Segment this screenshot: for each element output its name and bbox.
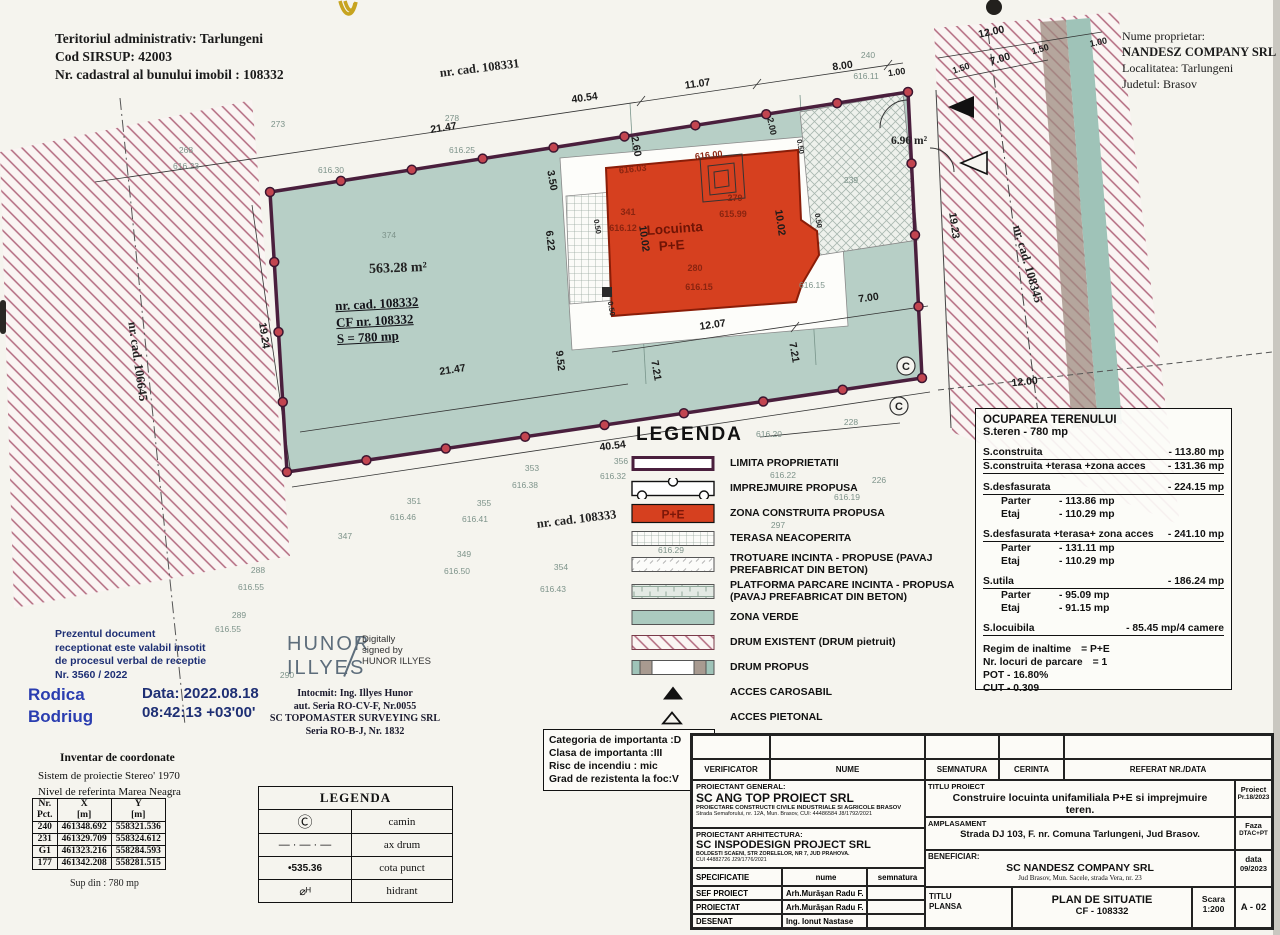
fence-point bbox=[679, 409, 688, 418]
pg-name: SC ANG TOP PROIECT SRL bbox=[696, 791, 921, 805]
site-address: Strada DJ 103, F. nr. Comuna Tarlungeni,… bbox=[926, 829, 1234, 840]
occupancy-label: Parter bbox=[1001, 589, 1059, 602]
empty-cell bbox=[999, 735, 1064, 759]
spec-person: Ing. Ionut Nastase bbox=[782, 914, 867, 928]
occupancy-row: Parter- 113.86 mp bbox=[983, 495, 1224, 508]
coordinate-cell: 240 bbox=[33, 822, 58, 834]
col-point: Nr. Pct. bbox=[33, 799, 58, 822]
cerinta-header: CERINTA bbox=[999, 759, 1064, 780]
fence-point bbox=[907, 159, 916, 168]
plan-label: 273 bbox=[271, 119, 285, 129]
black-dot-artifact bbox=[986, 0, 1002, 15]
imprejmuire-symbol bbox=[628, 478, 718, 499]
owner-county: Judetul: Brasov bbox=[1122, 76, 1277, 92]
symbol-legend-title: LEGENDA bbox=[259, 787, 453, 810]
site-address-cell: AMPLASAMENT Strada DJ 103, F. nr. Comuna… bbox=[925, 817, 1235, 850]
project-title-label: TITLU PROIECT bbox=[926, 781, 1234, 792]
col-x: X [m] bbox=[57, 799, 111, 822]
plan-label: 240 bbox=[861, 50, 875, 60]
fence-point bbox=[914, 302, 923, 311]
plan-label: 278 bbox=[445, 113, 459, 123]
legend-item-label: ACCES PIETONAL bbox=[730, 712, 823, 724]
legend-item-label: PLATFORMA PARCARE INCINTA - PROPUSA (PAV… bbox=[730, 580, 954, 603]
sheet-title-cell: PLAN DE SITUATIE CF - 108332 bbox=[1012, 887, 1192, 928]
fire-risk: Risc de incendiu : mic bbox=[549, 760, 709, 773]
plan-label: 1.00 bbox=[887, 66, 906, 78]
occupancy-value: - 224.15 mp bbox=[1168, 481, 1224, 494]
occupancy-label: Nr. locuri de parcare bbox=[983, 656, 1083, 669]
empty-cell bbox=[925, 735, 999, 759]
general-designer-cell: PROIECTANT GENERAL: SC ANG TOP PROIECT S… bbox=[692, 780, 925, 828]
stamp-signer-first: Rodica bbox=[28, 684, 93, 706]
plan-label: 616.25 bbox=[449, 145, 475, 155]
occupancy-row: S.construita- 113.80 mp bbox=[983, 446, 1224, 460]
spec-person: Arh.Murăşan Radu F. bbox=[782, 886, 867, 900]
occupancy-value: - 91.15 mp bbox=[1059, 602, 1109, 615]
semnatura-header: SEMNATURA bbox=[925, 759, 999, 780]
plan-label: nr. cad. 108333 bbox=[536, 507, 617, 531]
pa-line2: CUI 44882726 J29/1776/2021 bbox=[696, 857, 921, 863]
plan-label: 616.43 bbox=[540, 584, 566, 594]
legend-item: IMPREJMUIRE PROPUSA bbox=[628, 478, 998, 499]
occupancy-value: - 131.11 mp bbox=[1059, 542, 1115, 555]
occupancy-value: - 85.45 mp/4 camere bbox=[1126, 622, 1224, 635]
fence-point bbox=[600, 421, 609, 430]
amplasament-label: AMPLASAMENT bbox=[926, 818, 1234, 829]
legend-item: LIMITA PROPRIETATII bbox=[628, 453, 998, 474]
surveyor-line3: SC TOPOMASTER SURVEYING SRL bbox=[260, 713, 450, 726]
main-legend: LEGENDA LIMITA PROPRIETATIIIMPREJMUIRE P… bbox=[628, 424, 998, 732]
land-occupancy-table: OCUPAREA TERENULUI S.teren - 780 mp S.co… bbox=[975, 408, 1232, 690]
plan-label: 351 bbox=[407, 496, 421, 506]
importance-category: Categoria de importanta :D bbox=[549, 734, 709, 747]
fence-point bbox=[407, 165, 416, 174]
legend-item-label: TROTUARE INCINTA - PROPUSE (PAVAJ PREFAB… bbox=[730, 553, 932, 576]
symbol-legend-row: ⌀ᴴhidrant bbox=[259, 880, 453, 903]
legend-item: TERASA NEACOPERITA bbox=[628, 528, 998, 549]
stamp-date-line1: Data: 2022.08.18 bbox=[142, 684, 259, 703]
symbol-legend-row: — · — · —ax drum bbox=[259, 834, 453, 857]
symbol-legend-label: hidrant bbox=[352, 880, 453, 903]
spec-role: DESENAT bbox=[692, 914, 782, 928]
fence-point bbox=[270, 258, 279, 267]
fence-point bbox=[283, 468, 292, 477]
svg-text:P+E: P+E bbox=[661, 508, 684, 522]
plan-label: nr. cad. 108331 bbox=[439, 56, 520, 80]
acces-pietonal-symbol bbox=[628, 707, 718, 728]
project-number-cell: Proiect Pr.18/2023 bbox=[1235, 780, 1272, 817]
stamp-date: Data: 2022.08.18 08:42:13 +03'00' bbox=[142, 684, 259, 722]
edge-blob-artifact bbox=[0, 300, 6, 334]
plan-label: P+E bbox=[658, 237, 685, 254]
spec-signature bbox=[867, 914, 925, 928]
spec-row: DESENATIng. Ionut Nastase bbox=[692, 914, 925, 928]
occupancy-gap bbox=[983, 474, 1224, 481]
occupancy-label: Regim de inaltime bbox=[983, 643, 1071, 656]
symbol-legend-table: LEGENDA Ⓒcamin— · — · —ax drum•535.36cot… bbox=[258, 786, 453, 903]
project-label: Proiect bbox=[1236, 785, 1271, 794]
occupancy-value: - 110.29 mp bbox=[1059, 508, 1115, 521]
occupancy-row: Parter- 131.11 mp bbox=[983, 542, 1224, 555]
legend-item-label: ACCES CAROSABIL bbox=[730, 687, 832, 699]
spec-row: SEF PROIECTArh.Murăşan Radu F. bbox=[692, 886, 925, 900]
sheet-cf: CF - 108332 bbox=[1013, 906, 1191, 917]
occupancy-row: POT - 16.80% bbox=[983, 669, 1224, 682]
parcel-id-annotation: nr. cad. 108332 CF nr. 108332 S = 780 mp bbox=[335, 294, 421, 348]
coordinate-row: 240461348.692558321.536 bbox=[33, 822, 166, 834]
scale-label: Scara bbox=[1193, 894, 1234, 904]
platforma-symbol bbox=[628, 581, 718, 602]
legend-item-label: ZONA VERDE bbox=[730, 612, 798, 624]
fence-point bbox=[918, 374, 927, 383]
plan-label: 356 bbox=[614, 456, 628, 466]
yellow-scribble-artifact bbox=[340, 1, 356, 14]
coordinate-cell: 461323.216 bbox=[57, 846, 111, 858]
occupancy-value: - 113.80 mp bbox=[1168, 446, 1224, 459]
occupancy-value: - 241.10 mp bbox=[1168, 528, 1224, 541]
legend-item-label: DRUM PROPUS bbox=[730, 662, 809, 674]
occupancy-row: Regim de inaltime= P+E bbox=[983, 643, 1224, 656]
acces-carosabil-symbol bbox=[628, 682, 718, 703]
coordinate-row: G1461323.216558284.593 bbox=[33, 846, 166, 858]
occupancy-row: Etaj- 110.29 mp bbox=[983, 508, 1224, 521]
beneficiary-label: BENEFICIAR: bbox=[926, 851, 1234, 862]
symbol-legend-label: cota punct bbox=[352, 857, 453, 880]
occupancy-row: S.locuibila- 85.45 mp/4 camere bbox=[983, 622, 1224, 636]
legend-item: ACCES PIETONAL bbox=[628, 707, 998, 728]
occupancy-row: Etaj- 110.29 mp bbox=[983, 555, 1224, 568]
occupancy-value: - 186.24 mp bbox=[1168, 575, 1224, 588]
stamp-signer-last: Bodriug bbox=[28, 706, 93, 728]
coordinate-cell: G1 bbox=[33, 846, 58, 858]
sirsup-line: Cod SIRSUP: 42003 bbox=[55, 48, 284, 66]
limita-symbol bbox=[628, 453, 718, 474]
utility-box bbox=[602, 287, 612, 297]
occupancy-value: = 1 bbox=[1093, 656, 1108, 669]
occupancy-label: Etaj bbox=[1001, 508, 1059, 521]
cota-punct-icon: •535.36 bbox=[259, 857, 352, 880]
legend-item: PLATFORMA PARCARE INCINTA - PROPUSA (PAV… bbox=[628, 580, 998, 603]
occupancy-row: Nr. locuri de parcare= 1 bbox=[983, 656, 1224, 669]
occupancy-gap bbox=[983, 521, 1224, 528]
plan-label: 341 bbox=[620, 207, 635, 217]
legend-item: TROTUARE INCINTA - PROPUSE (PAVAJ PREFAB… bbox=[628, 553, 998, 576]
plan-label: 563.28 m² bbox=[369, 260, 427, 277]
coordinate-cell: 461329.709 bbox=[57, 834, 111, 846]
digital-signature-note: Digitally signed by HUNOR ILLYES bbox=[362, 634, 431, 667]
occupancy-row: S.utila- 186.24 mp bbox=[983, 575, 1224, 589]
coordinates-projection: Sistem de proiectie Stereo' 1970 bbox=[38, 770, 180, 782]
occupancy-row: Etaj- 91.15 mp bbox=[983, 602, 1224, 615]
legend-item: DRUM EXISTENT (DRUM pietruit) bbox=[628, 632, 998, 653]
spec-nume-header: nume bbox=[782, 868, 867, 886]
fence-point bbox=[521, 432, 530, 441]
owner-info: Nume proprietar: NANDESZ COMPANY SRL Loc… bbox=[1122, 28, 1277, 92]
surveyor-line1: Intocmit: Ing. Illyes Hunor bbox=[260, 688, 450, 701]
plan-label: 239 bbox=[844, 175, 858, 185]
paper-edge bbox=[1273, 0, 1280, 935]
plan-label: 616.41 bbox=[462, 514, 488, 524]
occupancy-label: S.utila bbox=[983, 575, 1014, 588]
surveyor-line2: aut. Seria RO-CV-F, Nr.0055 bbox=[260, 701, 450, 714]
occupancy-label: Parter bbox=[1001, 542, 1059, 555]
fence-point bbox=[620, 132, 629, 141]
occupancy-row: S.desfasurata +terasa+ zona acces- 241.1… bbox=[983, 528, 1224, 542]
sheet-title: PLAN DE SITUATIE bbox=[1013, 894, 1191, 906]
spec-header-row: SPECIFICATIE nume semnatura bbox=[692, 868, 925, 886]
spec-header: SPECIFICATIE bbox=[692, 868, 782, 886]
legend-item-label: IMPREJMUIRE PROPUSA bbox=[730, 483, 858, 495]
occupancy-label: Etaj bbox=[1001, 602, 1059, 615]
fence-point bbox=[904, 88, 913, 97]
scale-value: 1:200 bbox=[1193, 904, 1234, 914]
legend-item: P+EZONA CONSTRUITA PROPUSA bbox=[628, 503, 998, 524]
terasa-symbol bbox=[628, 528, 718, 549]
occupancy-label: Etaj bbox=[1001, 555, 1059, 568]
date-cell: data 09/2023 bbox=[1235, 850, 1272, 887]
cadastral-line: Nr. cadastral al bunului imobil : 108332 bbox=[55, 66, 284, 84]
occupancy-subtitle: S.teren - 780 mp bbox=[983, 426, 1224, 438]
symbol-legend-label: camin bbox=[352, 810, 453, 834]
col-y: Y [m] bbox=[111, 799, 165, 822]
sheet-title-label-cell: TITLU PLANSA bbox=[925, 887, 1012, 928]
surveyor-line4: Seria RO-B-J, Nr. 1832 bbox=[260, 726, 450, 739]
occupancy-label: POT - 16.80% bbox=[983, 669, 1048, 682]
plan-label: 616.11 bbox=[853, 71, 879, 81]
fence-point bbox=[911, 231, 920, 240]
fence-point bbox=[478, 154, 487, 163]
coordinates-footer: Sup din : 780 mp bbox=[70, 878, 139, 889]
spec-role: SEF PROIECT bbox=[692, 886, 782, 900]
fence-point bbox=[549, 143, 558, 152]
architecture-designer-cell: PROIECTANT ARHITECTURA: SC INSPODESIGN P… bbox=[692, 828, 925, 868]
beneficiary-cell: BENEFICIAR: SC NANDESZ COMPANY SRL Jud B… bbox=[925, 850, 1235, 887]
title-block: VERIFICATOR NUME PROIECTANT GENERAL: SC … bbox=[690, 733, 1274, 930]
occupancy-label: S.construita bbox=[983, 446, 1043, 459]
coordinate-cell: 558284.593 bbox=[111, 846, 165, 858]
date-value: 09/2023 bbox=[1236, 864, 1271, 873]
coordinates-datum: Nivel de referinta Marea Neagra bbox=[38, 786, 181, 798]
scanned-site-plan-document: nr. cad. 10833140.5411.078.001.00240616.… bbox=[0, 0, 1280, 935]
phase-value: DTAC+PT bbox=[1236, 830, 1271, 837]
empty-cell bbox=[1064, 735, 1272, 759]
plan-label: 347 bbox=[338, 531, 352, 541]
fence-point bbox=[274, 328, 283, 337]
plan-label: 349 bbox=[457, 549, 471, 559]
legend-item: DRUM PROPUS bbox=[628, 657, 998, 678]
sheet-title-label: TITLU PLANSA bbox=[926, 888, 1011, 916]
scale-cell: Scara 1:200 bbox=[1192, 887, 1235, 928]
plan-label: 9.52 bbox=[553, 350, 567, 372]
coordinate-row: 231461329.709558324.612 bbox=[33, 834, 166, 846]
plan-label: 616.30 bbox=[318, 165, 344, 175]
drum-existent-symbol bbox=[628, 632, 718, 653]
coordinate-cell: 558321.536 bbox=[111, 822, 165, 834]
fence-point bbox=[362, 456, 371, 465]
plan-label: 616.15 bbox=[685, 282, 713, 292]
fence-point bbox=[336, 176, 345, 185]
spec-signature bbox=[867, 886, 925, 900]
plan-label: 280 bbox=[687, 263, 702, 273]
plan-label: 616.12 bbox=[609, 223, 637, 233]
coordinate-cell: 461342.208 bbox=[57, 858, 111, 870]
occupancy-label: CUT - 0.309 bbox=[983, 682, 1039, 695]
legend-item-label: DRUM EXISTENT (DRUM pietruit) bbox=[730, 637, 896, 649]
occupancy-row: CUT - 0.309 bbox=[983, 682, 1224, 695]
plan-label: 268 bbox=[179, 145, 193, 155]
plan-label: 40.54 bbox=[599, 438, 627, 453]
trotuare-symbol bbox=[628, 554, 718, 575]
coordinate-cell: 461348.692 bbox=[57, 822, 111, 834]
occupancy-label: S.desfasurata +terasa+ zona acces bbox=[983, 528, 1154, 541]
phase-cell: Faza DTAC+PT bbox=[1235, 817, 1272, 850]
occupancy-row: S.desfasurata- 224.15 mp bbox=[983, 481, 1224, 495]
referat-header: REFERAT NR./DATA bbox=[1064, 759, 1272, 780]
occupancy-label: S.construita +terasa +zona acces bbox=[983, 460, 1146, 473]
occupancy-row: S.construita +terasa +zona acces- 131.36… bbox=[983, 460, 1224, 474]
stamp-signer-name: Rodica Bodriug bbox=[28, 684, 93, 728]
occupancy-value: = P+E bbox=[1081, 643, 1110, 656]
legend-item-label: LIMITA PROPRIETATII bbox=[730, 458, 839, 470]
pg-label: PROIECTANT GENERAL: bbox=[696, 782, 921, 791]
phase-label: Faza bbox=[1236, 821, 1271, 830]
legend-item-label: TERASA NEACOPERITA bbox=[730, 533, 851, 545]
plan-label: 6.22 bbox=[543, 230, 557, 252]
plan-label: 354 bbox=[554, 562, 568, 572]
pa-label: PROIECTANT ARHITECTURA: bbox=[696, 830, 921, 839]
zona-verde-symbol bbox=[628, 607, 718, 628]
sheet-number-cell: A - 02 bbox=[1235, 887, 1272, 928]
fence-point bbox=[691, 121, 700, 130]
legend-item: ZONA VERDE bbox=[628, 607, 998, 628]
project-title-cell: TITLU PROIECT Construire locuinta unifam… bbox=[925, 780, 1235, 817]
spec-row: PROIECTATArh.Murăşan Radu F. bbox=[692, 900, 925, 914]
occupancy-row: Parter- 95.09 mp bbox=[983, 589, 1224, 602]
verificator-header: VERIFICATOR bbox=[692, 759, 770, 780]
occupancy-rows: S.construita- 113.80 mpS.construita +ter… bbox=[983, 446, 1224, 695]
occupancy-value: - 110.29 mp bbox=[1059, 555, 1115, 568]
spec-role: PROIECTAT bbox=[692, 900, 782, 914]
plan-label: 616.55 bbox=[238, 582, 264, 592]
coordinate-cell: 558281.515 bbox=[111, 858, 165, 870]
coordinates-title: Inventar de coordonate bbox=[60, 752, 175, 764]
legend-item: ACCES CAROSABIL bbox=[628, 682, 998, 703]
symbol-legend-row: Ⓒcamin bbox=[259, 810, 453, 834]
road-existing-area bbox=[0, 100, 290, 608]
occupancy-label: S.locuibila bbox=[983, 622, 1035, 635]
symbol-legend-label: ax drum bbox=[352, 834, 453, 857]
plan-label: 8.00 bbox=[832, 59, 854, 74]
plan-label: C bbox=[895, 401, 903, 413]
zona-construita-symbol: P+E bbox=[628, 503, 718, 524]
coordinates-table: Nr. Pct. X [m] Y [m] 240461348.692558321… bbox=[32, 798, 166, 870]
spec-semnatura-header: semnatura bbox=[867, 868, 925, 886]
occupancy-value: - 95.09 mp bbox=[1059, 589, 1109, 602]
plan-label: 40.54 bbox=[571, 90, 599, 106]
owner-locality: Localitatea: Tarlungeni bbox=[1122, 60, 1277, 76]
plan-label: 355 bbox=[477, 498, 491, 508]
beneficiary-name: SC NANDESZ COMPANY SRL bbox=[926, 862, 1234, 874]
ax-drum-icon: — · — · — bbox=[259, 834, 352, 857]
occupancy-gap bbox=[983, 615, 1224, 622]
occupancy-value: - 113.86 mp bbox=[1059, 495, 1115, 508]
occupancy-label: Parter bbox=[1001, 495, 1059, 508]
surveyor-details: Intocmit: Ing. Illyes Hunor aut. Seria R… bbox=[260, 688, 450, 738]
reception-stamp-text: Prezentul document receptionat este vala… bbox=[55, 628, 275, 682]
plan-label: 616.46 bbox=[390, 512, 416, 522]
territory-line: Teritoriul administrativ: Tarlungeni bbox=[55, 30, 284, 48]
camin-icon: Ⓒ bbox=[259, 810, 352, 834]
nume-header: NUME bbox=[770, 759, 925, 780]
occupancy-title: OCUPAREA TERENULUI bbox=[983, 414, 1224, 426]
signer-last: ILLYES bbox=[287, 656, 370, 680]
owner-name: NANDESZ COMPANY SRL bbox=[1122, 44, 1277, 60]
plan-label: 11.07 bbox=[684, 76, 711, 91]
importance-class: Clasa de importanta :III bbox=[549, 747, 709, 760]
legend-title: LEGENDA bbox=[636, 424, 998, 446]
plan-label: 289 bbox=[232, 610, 246, 620]
empty-cell bbox=[770, 735, 925, 759]
project-number: Pr.18/2023 bbox=[1236, 794, 1271, 801]
fence-point bbox=[266, 188, 275, 197]
spec-person: Arh.Murăşan Radu F. bbox=[782, 900, 867, 914]
admin-territory-info: Teritoriul administrativ: Tarlungeni Cod… bbox=[55, 30, 284, 84]
legend-items: LIMITA PROPRIETATIIIMPREJMUIRE PROPUSAP+… bbox=[628, 453, 998, 728]
occupancy-gap bbox=[983, 636, 1224, 643]
plan-label: 616.15 bbox=[799, 280, 825, 290]
coordinate-row: 177461342.208558281.515 bbox=[33, 858, 166, 870]
coordinate-cell: 558324.612 bbox=[111, 834, 165, 846]
plan-label: 616.23 bbox=[173, 161, 199, 171]
owner-label: Nume proprietar: bbox=[1122, 28, 1277, 44]
fence-point bbox=[441, 444, 450, 453]
spec-signature bbox=[867, 900, 925, 914]
occupancy-gap bbox=[983, 568, 1224, 575]
plan-label: 279 bbox=[727, 193, 742, 203]
fire-resistance: Grad de rezistenta la foc:V bbox=[549, 773, 709, 786]
symbol-legend-row: •535.36cota punct bbox=[259, 857, 453, 880]
plan-label: 616.32 bbox=[600, 471, 626, 481]
hidrant-icon: ⌀ᴴ bbox=[259, 880, 352, 903]
plan-label: 615.99 bbox=[719, 209, 747, 219]
plan-label: 616.50 bbox=[444, 566, 470, 576]
beneficiary-address: Jud Brasov, Mun. Sacele, strada Vera, nr… bbox=[926, 874, 1234, 882]
coordinate-cell: 231 bbox=[33, 834, 58, 846]
plan-label: 6.96 m² bbox=[891, 135, 928, 147]
fence-point bbox=[759, 397, 768, 406]
fence-point bbox=[278, 398, 287, 407]
plan-label: 616.38 bbox=[512, 480, 538, 490]
legend-item-label: ZONA CONSTRUITA PROPUSA bbox=[730, 508, 885, 520]
fence-point bbox=[838, 385, 847, 394]
drum-propus-symbol bbox=[628, 657, 718, 678]
empty-cell bbox=[692, 735, 770, 759]
pg-line2: Strada Semaforului, nr. 12A, Mun. Brasov… bbox=[696, 811, 921, 817]
plan-label: 353 bbox=[525, 463, 539, 473]
plan-label: 374 bbox=[382, 230, 396, 240]
date-label: data bbox=[1236, 855, 1271, 864]
plan-label: 288 bbox=[251, 565, 265, 575]
stamp-date-line2: 08:42:13 +03'00' bbox=[142, 703, 259, 722]
pa-name: SC INSPODESIGN PROJECT SRL bbox=[696, 839, 921, 851]
occupancy-value: - 131.36 mp bbox=[1168, 460, 1224, 473]
plan-label: C bbox=[902, 361, 910, 373]
fence-point bbox=[833, 99, 842, 108]
project-title: Construire locuinta unifamiliala P+E si … bbox=[926, 792, 1234, 816]
coordinate-cell: 177 bbox=[33, 858, 58, 870]
occupancy-label: S.desfasurata bbox=[983, 481, 1051, 494]
